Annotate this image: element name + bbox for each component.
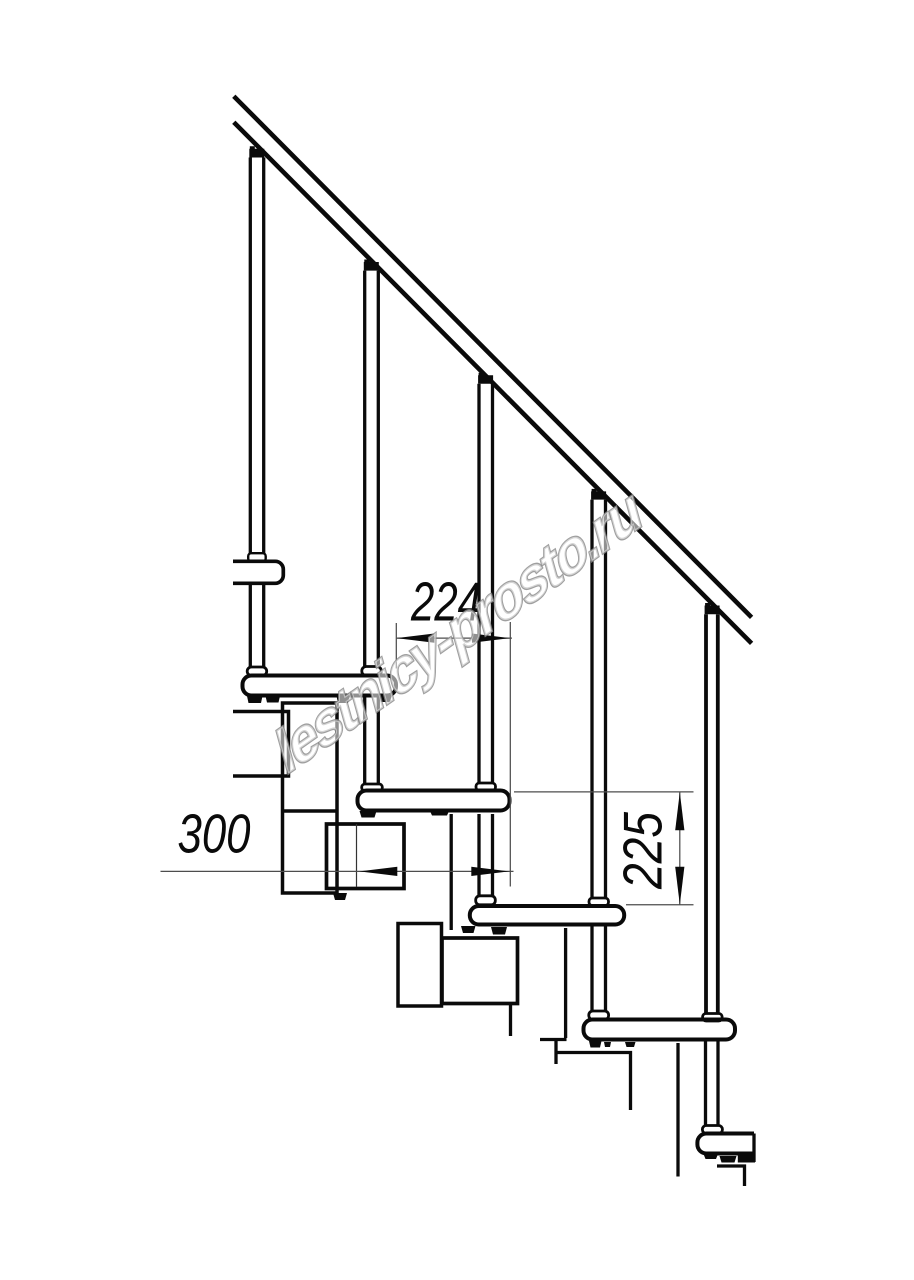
svg-text:300: 300 (178, 803, 251, 865)
svg-text:225: 225 (612, 812, 674, 890)
